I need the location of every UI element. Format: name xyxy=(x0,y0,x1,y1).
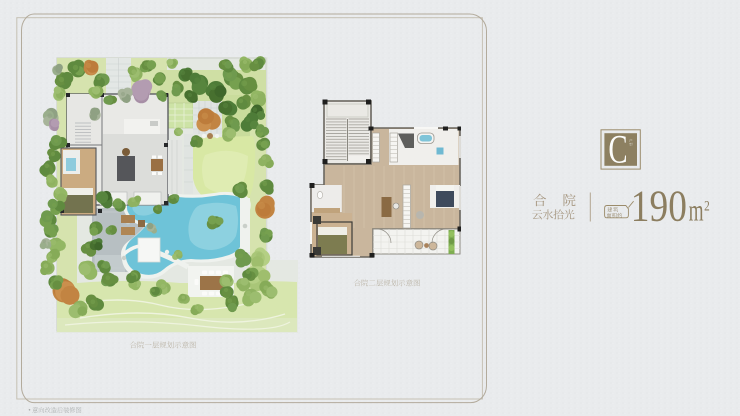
svg-text:C: C xyxy=(608,127,627,172)
svg-text:2: 2 xyxy=(704,197,710,214)
svg-text:190: 190 xyxy=(631,182,687,230)
svg-text:m: m xyxy=(689,193,704,228)
